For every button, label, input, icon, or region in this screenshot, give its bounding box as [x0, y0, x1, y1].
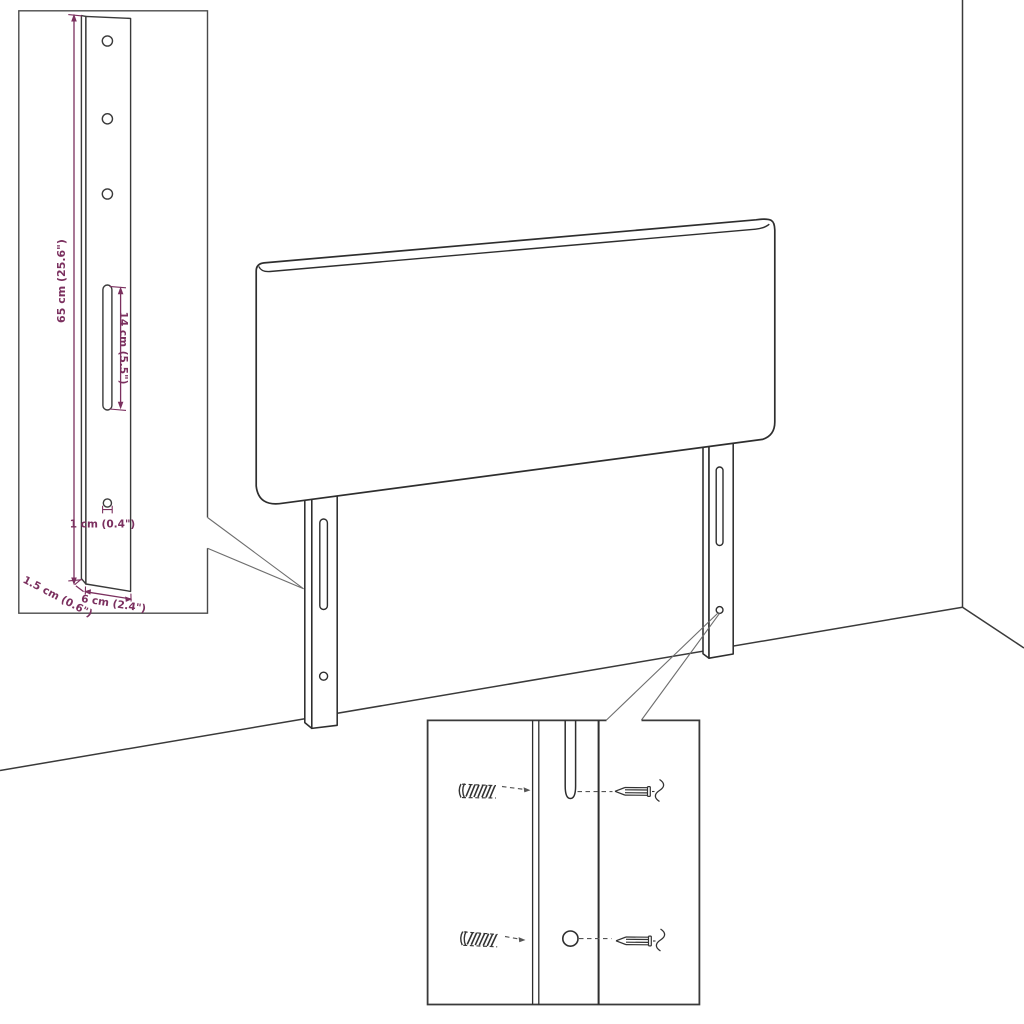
inset-leg-hole-4	[103, 499, 111, 507]
label-hole-1cm: 1 cm (0.4")	[70, 519, 135, 531]
right-leg	[703, 437, 733, 658]
right-leg-hole	[716, 607, 723, 614]
inset-leg-detail: 65 cm (25.6") 14 cm (5.5") 1 cm (0.4") 1…	[19, 11, 208, 620]
left-leg	[305, 490, 337, 728]
diagram-svg: 65 cm (25.6") 14 cm (5.5") 1 cm (0.4") 1…	[0, 0, 1024, 1024]
inset-leg-hole-2	[102, 114, 112, 124]
inset-leg-hole-3	[102, 189, 112, 199]
inset-leg-drawing	[81, 16, 130, 592]
mounting-box-fill	[428, 720, 700, 1004]
inset-leg-slot	[103, 285, 112, 410]
left-leg-side-face	[305, 490, 312, 728]
label-slot-14cm: 14 cm (5.5")	[117, 312, 129, 385]
left-leg-hole	[320, 672, 328, 680]
right-leg-slot	[716, 467, 723, 546]
product-diagram: 65 cm (25.6") 14 cm (5.5") 1 cm (0.4") 1…	[0, 0, 1024, 1024]
left-leg-slot	[320, 519, 328, 610]
inset-mounting-detail	[428, 720, 700, 1004]
inset-leg-hole-1	[102, 36, 112, 46]
label-height-65cm: 65 cm (25.6")	[55, 239, 68, 323]
